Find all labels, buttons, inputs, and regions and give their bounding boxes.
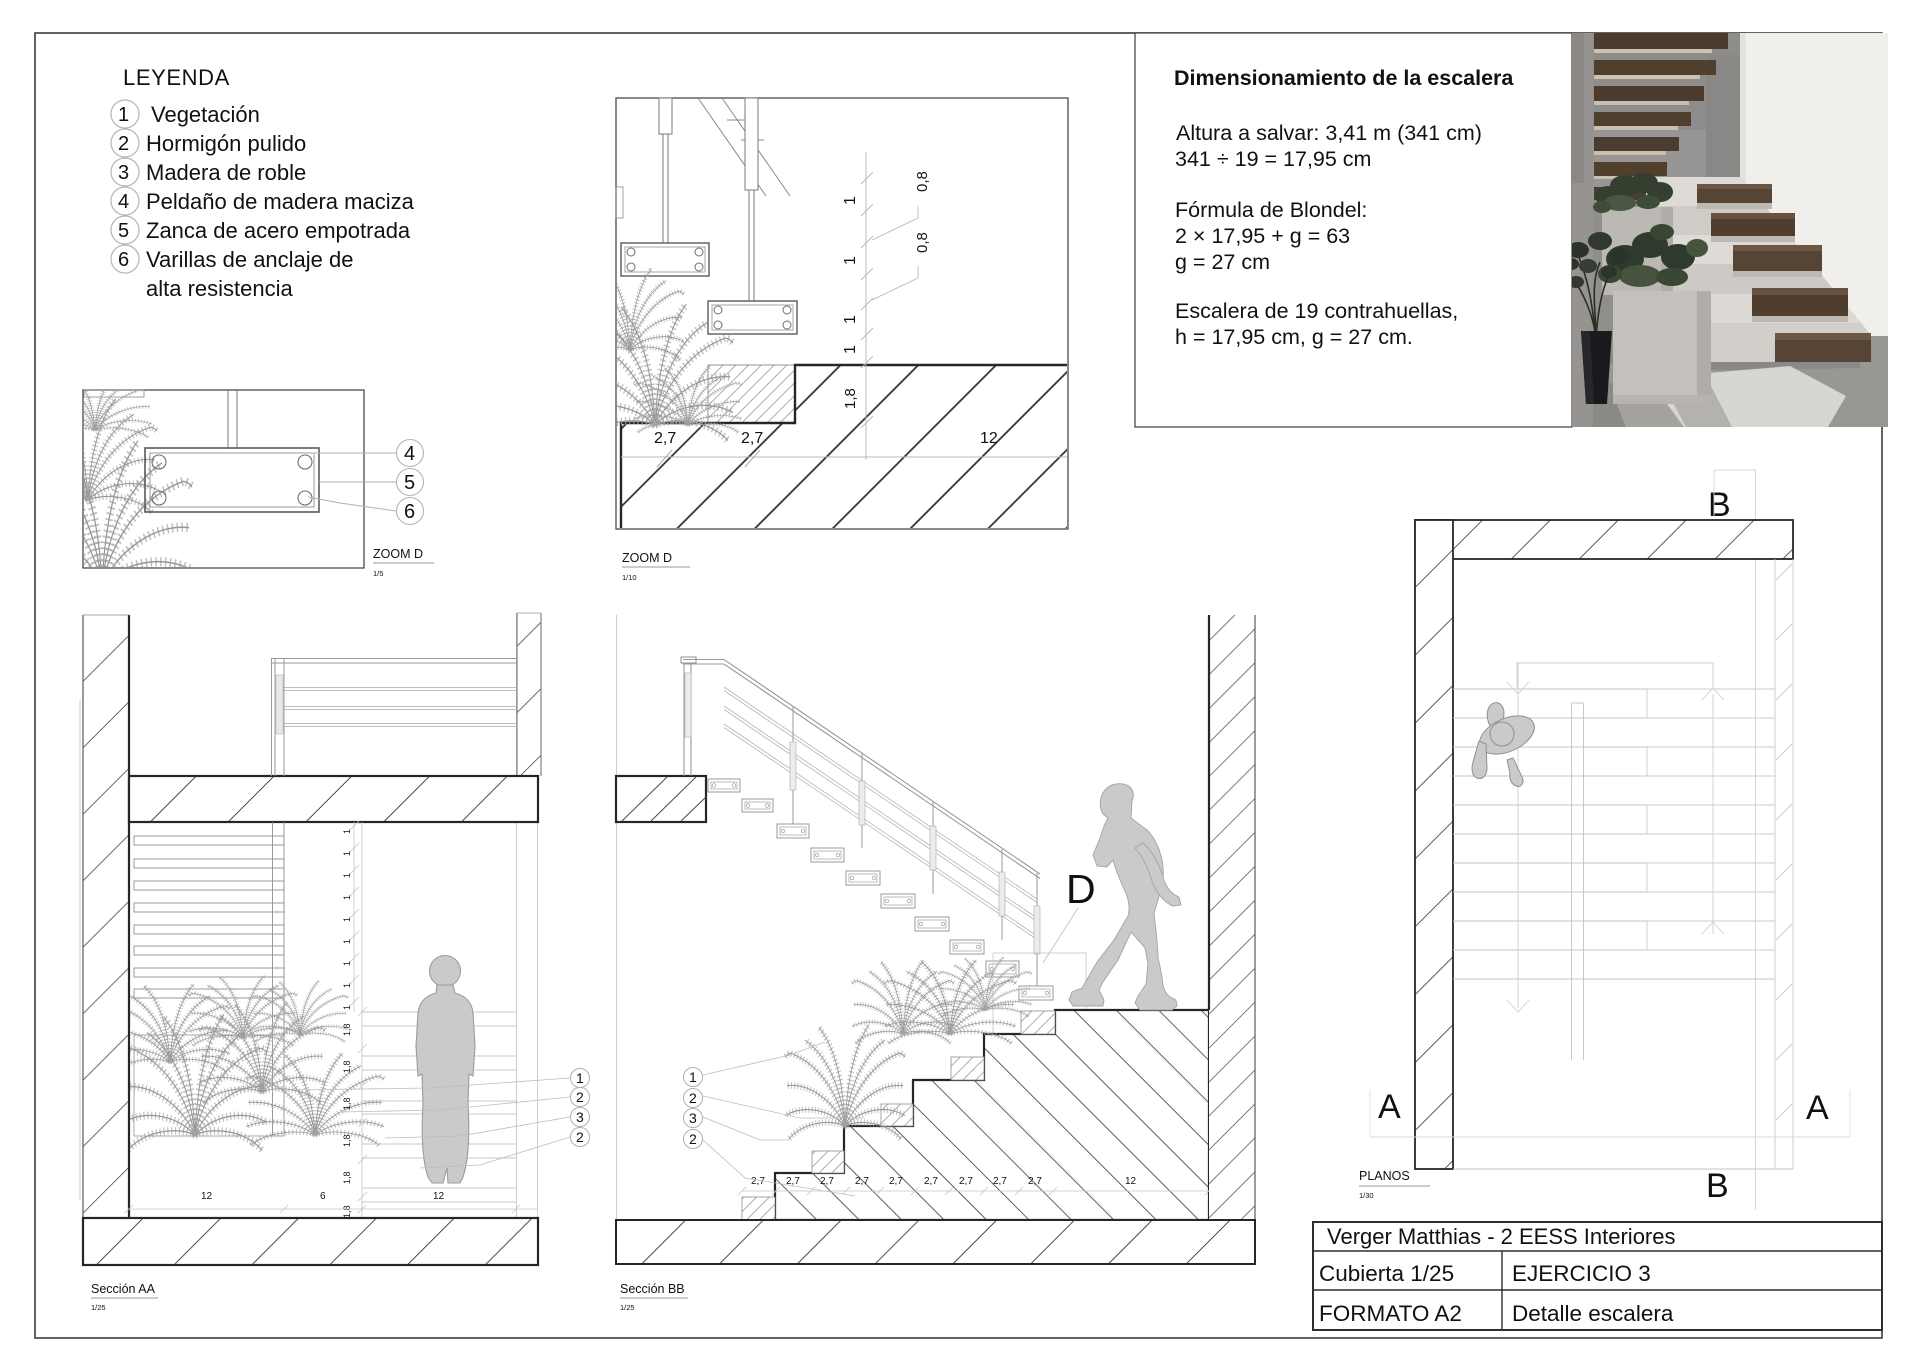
svg-text:1: 1	[689, 1069, 697, 1085]
svg-text:2,7: 2,7	[1028, 1176, 1042, 1187]
svg-text:Peldaño de madera maciza: Peldaño de madera maciza	[146, 189, 415, 214]
svg-text:2,7: 2,7	[889, 1176, 903, 1187]
svg-text:2,7: 2,7	[959, 1176, 973, 1187]
svg-text:3: 3	[576, 1109, 584, 1125]
svg-text:Dimensionamiento de la escaler: Dimensionamiento de la escalera	[1174, 66, 1514, 90]
svg-text:Madera de roble: Madera de roble	[146, 160, 306, 185]
svg-text:12: 12	[1125, 1176, 1137, 1187]
svg-text:1: 1	[842, 256, 859, 265]
svg-text:1: 1	[342, 961, 352, 966]
svg-text:EJERCICIO 3: EJERCICIO 3	[1512, 1261, 1651, 1286]
svg-text:2,7: 2,7	[751, 1176, 765, 1187]
svg-text:2: 2	[576, 1129, 584, 1145]
svg-text:1,8: 1,8	[342, 1023, 352, 1036]
svg-text:Detalle escalera: Detalle escalera	[1512, 1301, 1674, 1326]
svg-text:alta resistencia: alta resistencia	[146, 276, 294, 301]
svg-text:2: 2	[689, 1131, 697, 1147]
svg-text:FORMATO A2: FORMATO A2	[1319, 1301, 1462, 1326]
svg-text:LEYENDA: LEYENDA	[123, 65, 230, 90]
svg-text:1: 1	[842, 315, 859, 324]
svg-text:1/25: 1/25	[620, 1303, 635, 1312]
svg-text:0,8: 0,8	[914, 232, 931, 253]
svg-text:Sección BB: Sección BB	[620, 1282, 685, 1296]
svg-text:341 ÷ 19 = 17,95 cm: 341 ÷ 19 = 17,95 cm	[1175, 147, 1371, 171]
svg-text:1,8: 1,8	[842, 388, 859, 409]
svg-text:2,7: 2,7	[924, 1176, 938, 1187]
svg-text:Fórmula de Blondel:: Fórmula de Blondel:	[1175, 198, 1367, 222]
svg-text:2: 2	[576, 1089, 584, 1105]
svg-text:A: A	[1806, 1089, 1829, 1127]
svg-text:1/30: 1/30	[1359, 1191, 1374, 1200]
svg-text:1: 1	[342, 895, 352, 900]
svg-text:4: 4	[118, 191, 129, 213]
svg-text:5: 5	[404, 472, 415, 494]
svg-text:1: 1	[342, 829, 352, 834]
svg-text:1: 1	[342, 851, 352, 856]
svg-text:2 × 17,95 + g = 63: 2 × 17,95 + g = 63	[1175, 224, 1350, 248]
svg-text:12: 12	[201, 1191, 213, 1202]
svg-text:2,7: 2,7	[741, 430, 763, 447]
svg-text:1,8: 1,8	[342, 1060, 352, 1073]
svg-text:Escalera de 19 contrahuellas,: Escalera de 19 contrahuellas,	[1175, 299, 1458, 323]
svg-text:2,7: 2,7	[993, 1176, 1007, 1187]
svg-text:1: 1	[842, 345, 859, 354]
svg-text:6: 6	[320, 1191, 326, 1202]
svg-text:Hormigón pulido: Hormigón pulido	[146, 131, 306, 156]
svg-text:Zanca de acero empotrada: Zanca de acero empotrada	[146, 218, 411, 243]
svg-text:Cubierta 1/25: Cubierta 1/25	[1319, 1261, 1454, 1286]
svg-text:1: 1	[118, 104, 129, 126]
svg-text:ZOOM D: ZOOM D	[373, 547, 423, 561]
svg-text:g = 27 cm: g = 27 cm	[1175, 250, 1270, 274]
svg-text:D: D	[1066, 866, 1096, 912]
svg-text:1: 1	[342, 873, 352, 878]
svg-text:B: B	[1708, 486, 1731, 524]
svg-text:1: 1	[342, 1005, 352, 1010]
svg-text:PLANOS: PLANOS	[1359, 1169, 1410, 1183]
svg-text:Varillas de anclaje de: Varillas de anclaje de	[146, 247, 354, 272]
svg-text:B: B	[1706, 1167, 1729, 1205]
svg-text:h = 17,95 cm, g = 27 cm.: h = 17,95 cm, g = 27 cm.	[1175, 325, 1413, 349]
svg-text:Vegetación: Vegetación	[151, 102, 260, 127]
svg-text:1,8: 1,8	[342, 1205, 352, 1218]
svg-text:Verger Matthias - 2 EESS Inter: Verger Matthias - 2 EESS Interiores	[1327, 1224, 1676, 1249]
svg-text:6: 6	[404, 501, 415, 523]
svg-text:2,7: 2,7	[820, 1176, 834, 1187]
svg-text:12: 12	[980, 430, 998, 447]
svg-text:2,7: 2,7	[855, 1176, 869, 1187]
svg-text:1: 1	[342, 917, 352, 922]
svg-text:4: 4	[404, 443, 415, 465]
svg-text:0,8: 0,8	[914, 171, 931, 192]
svg-text:2: 2	[118, 133, 129, 155]
svg-text:Altura a salvar: 3,41 m (341 c: Altura a salvar: 3,41 m (341 cm)	[1176, 121, 1482, 145]
svg-text:1/10: 1/10	[622, 573, 637, 582]
svg-text:ZOOM D: ZOOM D	[622, 551, 672, 565]
svg-text:2,7: 2,7	[654, 430, 676, 447]
svg-text:1: 1	[342, 983, 352, 988]
svg-text:12: 12	[433, 1191, 445, 1202]
svg-text:1,8: 1,8	[342, 1134, 352, 1147]
svg-text:Sección AA: Sección AA	[91, 1282, 156, 1296]
svg-text:6: 6	[118, 249, 129, 271]
svg-text:2: 2	[689, 1090, 697, 1106]
svg-text:3: 3	[689, 1110, 697, 1126]
svg-text:A: A	[1378, 1088, 1401, 1126]
svg-text:1,8: 1,8	[342, 1097, 352, 1110]
svg-text:1/25: 1/25	[91, 1303, 106, 1312]
svg-text:1: 1	[342, 939, 352, 944]
svg-text:1,8: 1,8	[342, 1171, 352, 1184]
svg-text:1: 1	[842, 196, 859, 205]
svg-text:5: 5	[118, 220, 129, 242]
svg-text:1/5: 1/5	[373, 569, 383, 578]
svg-text:3: 3	[118, 162, 129, 184]
svg-text:1: 1	[576, 1070, 584, 1086]
